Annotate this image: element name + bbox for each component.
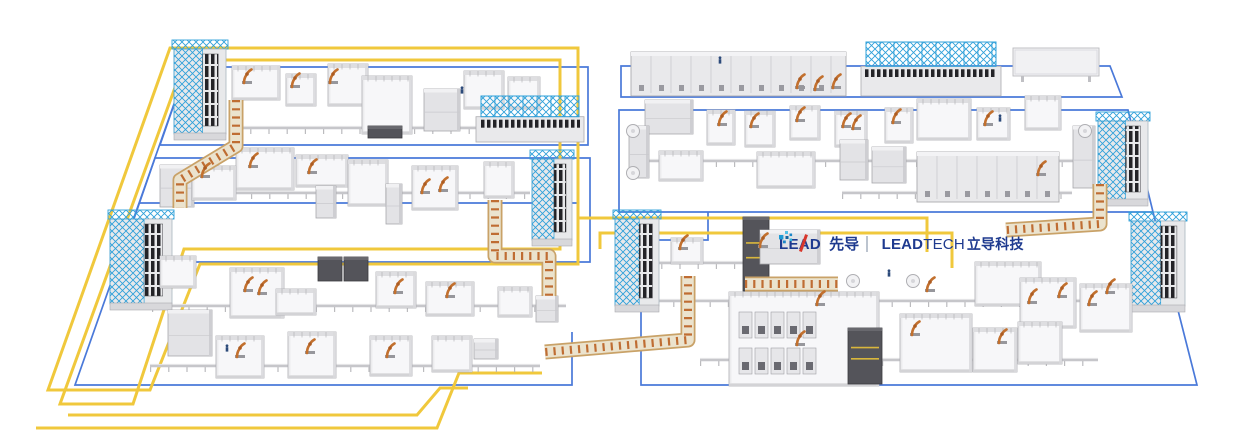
dark-machine xyxy=(318,257,342,281)
cell-machine xyxy=(348,160,388,206)
box-machine xyxy=(645,100,693,134)
rack-machine xyxy=(613,210,661,312)
rack-machine xyxy=(172,40,228,140)
cell-machine xyxy=(977,108,1010,140)
panel-machine xyxy=(1013,48,1099,82)
turntable xyxy=(847,275,860,288)
cell-machine xyxy=(659,151,703,181)
cell-machine xyxy=(1018,322,1062,364)
factory-line-render: LEAD 先导 LEADTECH立导科技 xyxy=(0,0,1235,441)
robot-arm xyxy=(925,278,935,293)
leadtech-logo: LEAD 先导 LEADTECH立导科技 xyxy=(779,231,1024,257)
cell-machine xyxy=(917,99,971,140)
machines-layer xyxy=(108,40,1187,386)
leadtech-bold: LEAD xyxy=(882,236,924,253)
cell-machine xyxy=(432,336,472,372)
box-machine xyxy=(386,184,402,224)
dark-machine xyxy=(368,126,402,138)
operator-figure xyxy=(226,344,229,351)
dark-machine xyxy=(848,328,882,384)
cell-machine xyxy=(1025,96,1061,130)
box-machine xyxy=(872,147,906,183)
box-machine xyxy=(840,140,868,180)
box-machine xyxy=(168,310,212,356)
rack-machine xyxy=(530,150,574,246)
cell-machine xyxy=(973,328,1017,372)
operator-figure xyxy=(719,56,722,63)
box-machine xyxy=(474,339,498,359)
factory-scene-canvas xyxy=(0,0,1235,441)
cell-machine xyxy=(757,152,815,188)
cell-machine xyxy=(236,148,294,190)
leadtech-reg: TECH xyxy=(923,236,965,253)
operator-figure xyxy=(461,86,464,93)
cell-machine xyxy=(232,66,280,100)
box-machine xyxy=(316,186,336,218)
cell-machine xyxy=(288,332,336,378)
cell-machine xyxy=(286,74,316,106)
cell-machine xyxy=(296,155,348,187)
cell-machine xyxy=(671,238,703,264)
turntable xyxy=(907,275,920,288)
turntable xyxy=(1079,125,1092,138)
cell-machine xyxy=(276,289,316,315)
rack-machine xyxy=(1129,212,1187,312)
cell-machine xyxy=(484,162,514,198)
cell-machine xyxy=(160,256,196,288)
long-machine xyxy=(917,152,1059,202)
lead-cn-wordmark: 先导 xyxy=(829,237,859,252)
logo-divider xyxy=(866,236,868,252)
dark-machine xyxy=(344,257,368,281)
cell-machine xyxy=(790,106,820,140)
box-machine xyxy=(424,89,460,131)
leadtech-wordmark: LEADTECH立导科技 xyxy=(882,237,1024,252)
turntable xyxy=(627,125,640,138)
cell-machine xyxy=(498,287,532,317)
cell-machine xyxy=(900,314,972,372)
truss-machine xyxy=(861,42,1001,96)
cell-machine xyxy=(362,76,412,134)
box-machine xyxy=(536,296,558,322)
truss-machine xyxy=(476,96,584,142)
operator-figure xyxy=(888,269,891,276)
cell-machine xyxy=(745,111,775,147)
lead-letter-d: D xyxy=(810,237,821,252)
leadtech-cn: 立导科技 xyxy=(967,236,1024,252)
cell-machine xyxy=(412,166,458,210)
turntable xyxy=(627,167,640,180)
cell-machine xyxy=(885,108,913,143)
operator-figure xyxy=(999,114,1002,121)
